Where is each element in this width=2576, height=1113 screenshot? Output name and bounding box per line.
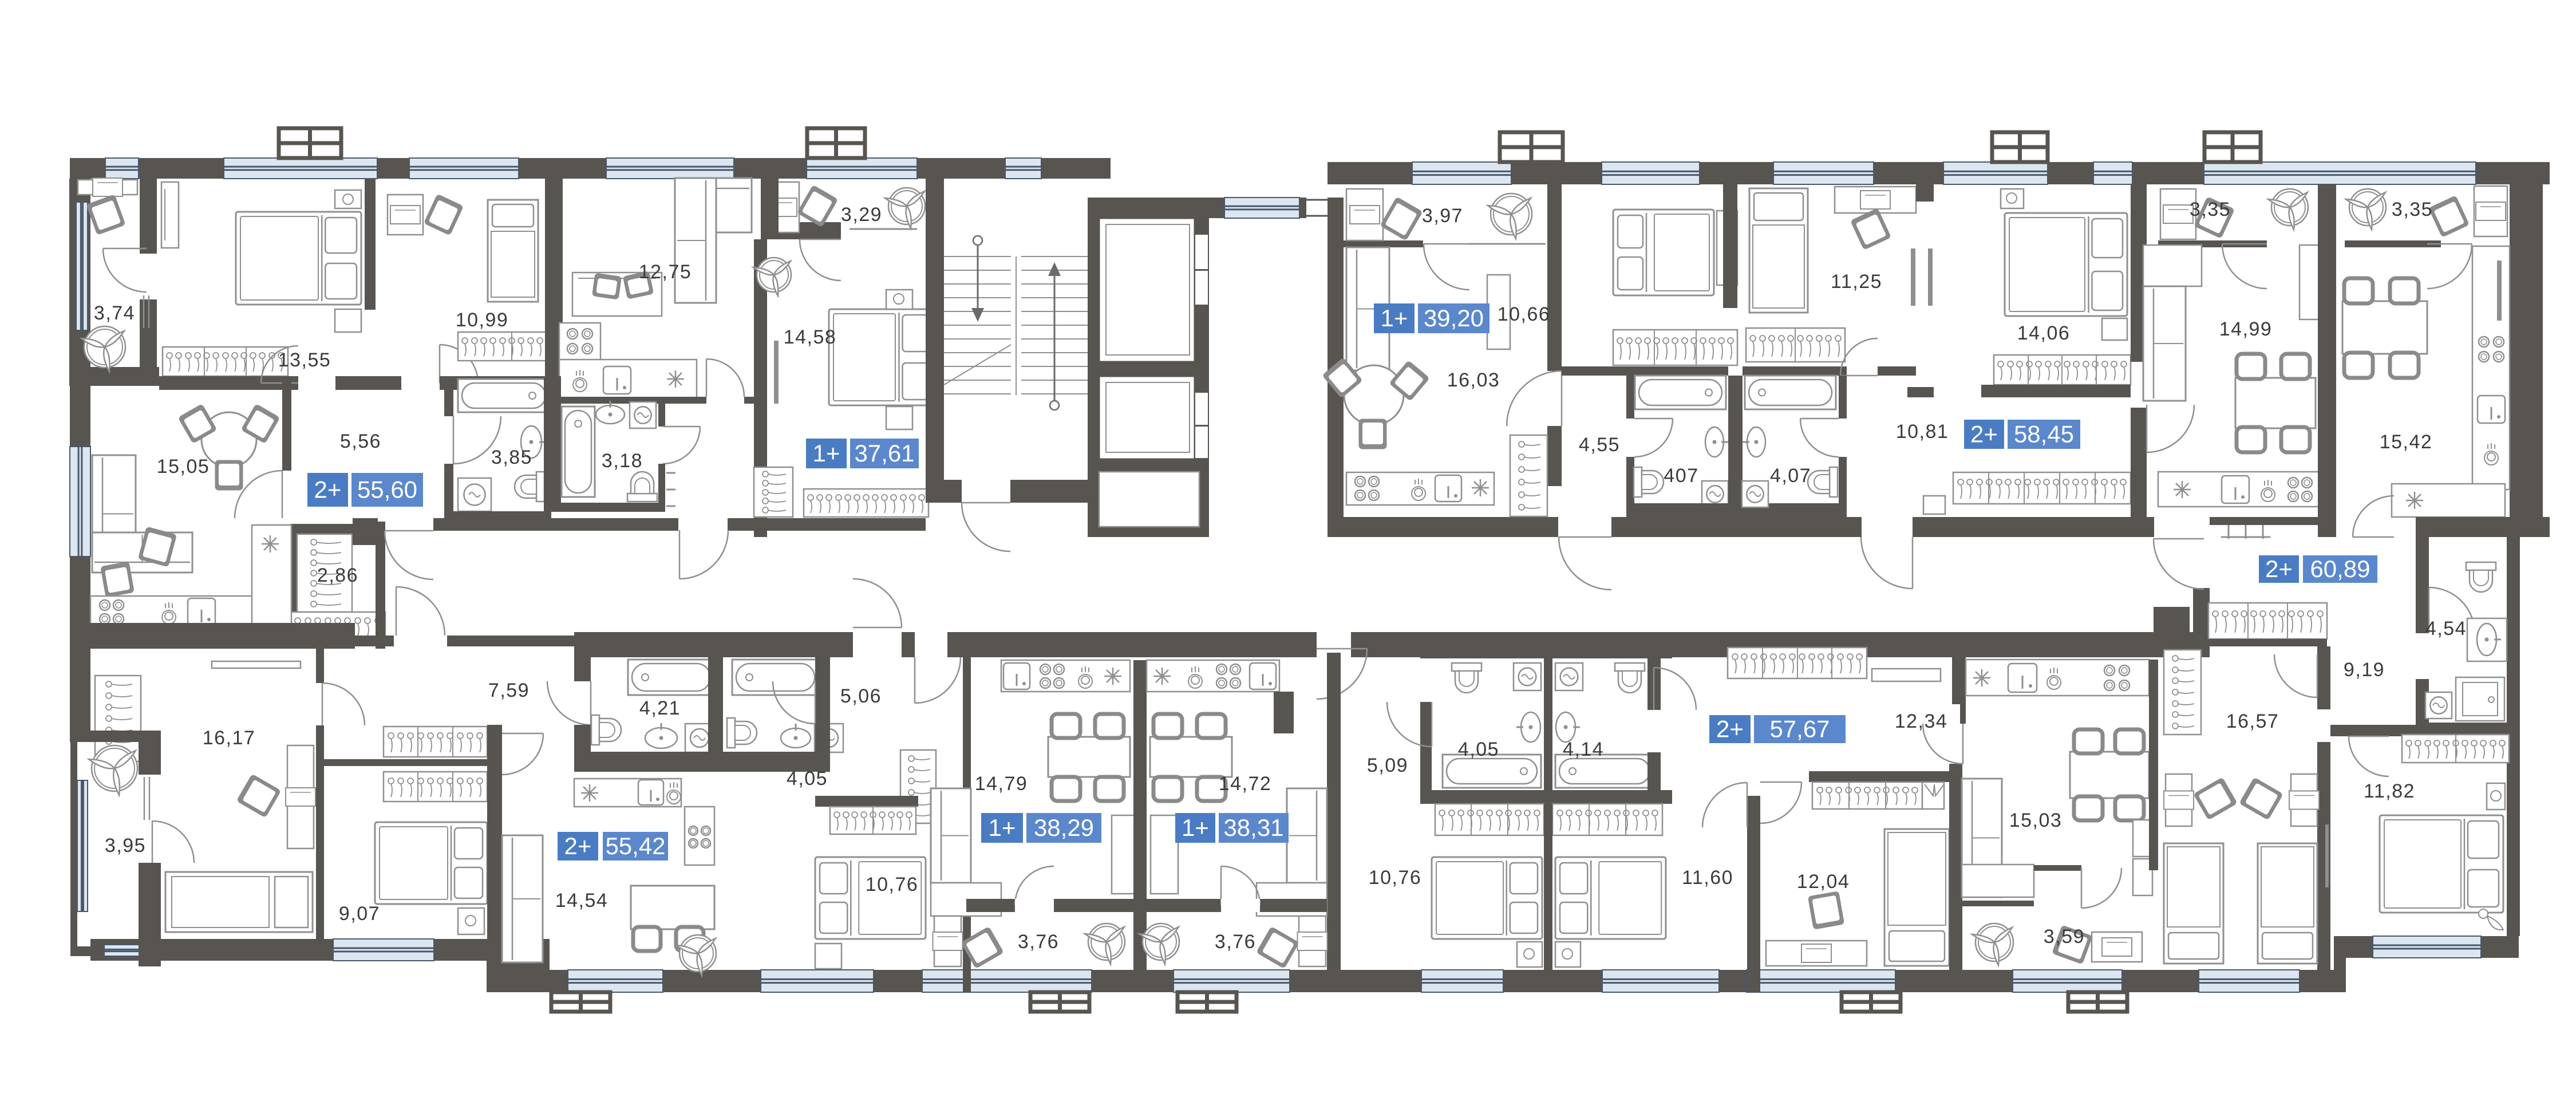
svg-text:14,99: 14,99 [2219,318,2273,340]
svg-text:3,76: 3,76 [1018,931,1059,953]
svg-text:2+: 2+ [2265,555,2293,582]
svg-text:15,05: 15,05 [157,456,210,477]
svg-text:10,76: 10,76 [866,874,919,895]
svg-text:4,21: 4,21 [639,697,681,719]
svg-text:14,79: 14,79 [975,773,1028,795]
svg-text:9,19: 9,19 [2344,659,2385,681]
svg-text:16,03: 16,03 [1447,369,1500,391]
svg-text:16,17: 16,17 [203,727,256,749]
svg-text:3,35: 3,35 [2392,199,2433,220]
svg-text:4,05: 4,05 [1458,739,1499,760]
svg-text:12,34: 12,34 [1895,711,1948,732]
svg-text:1+: 1+ [989,814,1016,841]
svg-text:12,04: 12,04 [1797,871,1850,893]
svg-text:4,55: 4,55 [1579,434,1620,456]
svg-text:5,09: 5,09 [1367,755,1408,776]
svg-text:3,18: 3,18 [602,450,643,472]
svg-text:14,06: 14,06 [2017,322,2071,344]
svg-text:14,58: 14,58 [784,326,837,348]
svg-text:57,67: 57,67 [1769,716,1830,743]
svg-text:407: 407 [1664,465,1698,487]
svg-text:10,76: 10,76 [1369,867,1422,889]
svg-text:1+: 1+ [1182,814,1209,841]
svg-text:11,60: 11,60 [1682,867,1733,889]
svg-text:60,89: 60,89 [2310,555,2370,582]
svg-text:11,82: 11,82 [2364,780,2415,802]
svg-text:12,75: 12,75 [639,261,692,283]
svg-text:3,59: 3,59 [2044,926,2085,948]
svg-text:15,42: 15,42 [2380,431,2433,453]
svg-text:37,61: 37,61 [854,440,914,467]
svg-text:14,72: 14,72 [1219,773,1272,795]
svg-text:4,05: 4,05 [787,768,828,790]
svg-text:3,95: 3,95 [105,835,146,857]
svg-text:10,99: 10,99 [456,309,509,331]
svg-text:2+: 2+ [564,832,592,859]
svg-text:9,07: 9,07 [339,903,380,925]
svg-text:2+: 2+ [1716,716,1744,743]
svg-text:3,76: 3,76 [1215,931,1256,953]
svg-text:38,31: 38,31 [1223,814,1283,841]
svg-text:3,29: 3,29 [841,204,882,226]
svg-text:15,03: 15,03 [2009,810,2063,831]
svg-text:16,57: 16,57 [2226,711,2279,732]
svg-text:3,97: 3,97 [1422,205,1463,227]
svg-text:7,59: 7,59 [488,680,530,701]
svg-text:2,86: 2,86 [317,565,358,586]
svg-text:55,42: 55,42 [605,832,665,859]
svg-text:4,54: 4,54 [2425,618,2467,640]
svg-text:2+: 2+ [314,476,342,503]
svg-text:5,06: 5,06 [840,685,882,707]
svg-text:3,85: 3,85 [491,447,532,468]
svg-text:13,55: 13,55 [278,349,331,371]
svg-text:4,07: 4,07 [1770,465,1811,487]
svg-text:5,56: 5,56 [340,431,381,452]
svg-text:10,66: 10,66 [1498,303,1551,325]
svg-text:2+: 2+ [1970,421,1998,448]
svg-text:4,14: 4,14 [1563,739,1604,760]
svg-text:3,35: 3,35 [2190,199,2231,220]
svg-text:1+: 1+ [1381,305,1408,331]
svg-text:58,45: 58,45 [2014,421,2074,448]
svg-text:11,25: 11,25 [1831,271,1882,293]
svg-text:39,20: 39,20 [1424,305,1484,331]
svg-text:38,29: 38,29 [1034,814,1094,841]
svg-text:10,81: 10,81 [1896,421,1949,443]
svg-text:3,74: 3,74 [94,302,135,324]
svg-text:1+: 1+ [813,440,840,467]
svg-text:14,54: 14,54 [555,890,609,911]
svg-text:55,60: 55,60 [357,476,417,503]
